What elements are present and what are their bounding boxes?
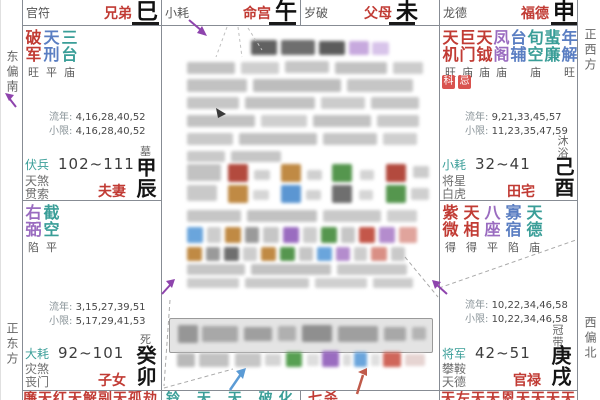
decade-range: 伏兵102~111 bbox=[25, 158, 135, 172]
palace-cell-bottom-2[interactable]: 铃 天 天 破化 bbox=[166, 391, 299, 400]
star-list: 右弼陷 截空平 bbox=[25, 204, 60, 254]
decade-range: 小耗32~41 bbox=[442, 158, 531, 172]
palace-cell-wu-header[interactable]: 小耗 命宫午 bbox=[161, 0, 300, 25]
year-deity-label: 龙德 bbox=[443, 4, 467, 21]
palace-cell-bottom-3[interactable]: 七杀 bbox=[308, 391, 438, 400]
star: 凤阁庙 bbox=[493, 29, 510, 79]
star: 破军旺 bbox=[25, 29, 42, 79]
star: 旬空庙 bbox=[527, 29, 544, 79]
brightness: 旺 bbox=[564, 67, 575, 79]
minor-star: 丧门 bbox=[25, 376, 49, 389]
star-list: 天机旺 巨门庙 天钺庙 凤阁庙 台辅 旬空庙 蜚廉 年解旺 bbox=[442, 29, 578, 79]
star: 蜚廉 bbox=[544, 29, 561, 79]
palace-cell-wei-header[interactable]: 岁破 父母未 bbox=[300, 0, 439, 25]
palace-name: 福德 bbox=[521, 3, 549, 23]
decade-range: 将军42~51 bbox=[442, 347, 531, 361]
palace-cell-xu[interactable]: 紫微得 天相得 八座平 寡宿陷 天德庙 流年: 10,22,34,46,58 小… bbox=[439, 200, 578, 390]
star: 巨门庙 bbox=[459, 29, 476, 79]
palace-cell-mao[interactable]: 右弼陷 截空平 流年: 3,15,27,39,51 小限: 5,17,29,41… bbox=[22, 200, 161, 390]
compass-east: 正东方 bbox=[5, 322, 18, 367]
palace-cell-si-header[interactable]: 官符 兄弟巳 bbox=[22, 0, 161, 25]
palace-name: 命宫 bbox=[243, 3, 271, 23]
branch-char: 巳 bbox=[136, 1, 158, 25]
yearly-ages: 流年: 9,21,33,45,57 小限: 11,23,35,47,59 bbox=[465, 111, 568, 139]
compass-east-south: 东偏南 bbox=[5, 50, 18, 95]
star: 三台庙 bbox=[61, 29, 78, 79]
star: 截空平 bbox=[43, 204, 60, 254]
brightness: 庙 bbox=[479, 67, 490, 79]
star: 紫微得 bbox=[442, 204, 459, 254]
brightness: 平 bbox=[487, 242, 498, 254]
branch-char: 未 bbox=[396, 1, 418, 25]
yearly-ages: 流年: 4,16,28,40,52 小限: 4,16,28,40,52 bbox=[49, 111, 146, 139]
star: 年解旺 bbox=[561, 29, 578, 79]
hua-ji-badge: 忌 bbox=[458, 75, 471, 89]
brightness: 得 bbox=[445, 242, 456, 254]
palace-name: 夫妻 bbox=[98, 181, 126, 201]
star: 八座平 bbox=[484, 204, 501, 254]
brightness: 庙 bbox=[530, 67, 541, 79]
brightness: 庙 bbox=[496, 67, 507, 79]
hua-ke-badge: 科 bbox=[442, 75, 455, 89]
star-list: 破军旺 天刑平 三台庙 bbox=[25, 29, 78, 79]
brightness: 庙 bbox=[529, 242, 540, 254]
branch-char: 午 bbox=[275, 1, 297, 25]
palace-name: 子女 bbox=[98, 370, 126, 390]
year-deity-label: 岁破 bbox=[304, 4, 328, 21]
decade-range: 大耗92~101 bbox=[25, 347, 124, 361]
star: 右弼陷 bbox=[25, 204, 42, 254]
yearly-ages: 流年: 3,15,27,39,51 小限: 5,17,29,41,53 bbox=[49, 301, 146, 329]
star: 寡宿陷 bbox=[505, 204, 522, 254]
grid-line bbox=[300, 390, 301, 400]
palace-cell-you[interactable]: 天机旺 巨门庙 天钺庙 凤阁庙 台辅 旬空庙 蜚廉 年解旺 科 忌 流年: 9,… bbox=[439, 25, 578, 200]
star: 天钺庙 bbox=[476, 29, 493, 79]
palace-name: 田宅 bbox=[507, 181, 535, 201]
purple-arrow-sidebar bbox=[5, 93, 16, 107]
compass-west-north: 西偏北 bbox=[583, 316, 596, 361]
brightness: 陷 bbox=[508, 242, 519, 254]
brightness: 平 bbox=[46, 242, 57, 254]
minor-star: 天德 bbox=[442, 376, 466, 389]
star: 天机旺 bbox=[442, 29, 459, 79]
branch-char: 申 bbox=[553, 1, 575, 25]
blurred-selected-row bbox=[169, 318, 433, 353]
brightness: 平 bbox=[46, 67, 57, 79]
palace-cell-bottom-4[interactable]: 天左天天恩天天天天 bbox=[441, 391, 577, 400]
palace-name: 官禄 bbox=[513, 370, 541, 390]
sihua-badges: 科 忌 bbox=[442, 75, 471, 89]
brightness: 陷 bbox=[28, 242, 39, 254]
branch-chars: 甲辰 bbox=[134, 157, 155, 199]
palace-cell-chen[interactable]: 破军旺 天刑平 三台庙 流年: 4,16,28,40,52 小限: 4,16,2… bbox=[22, 25, 161, 200]
palace-name: 父母 bbox=[364, 3, 392, 23]
year-deity-label: 官符 bbox=[26, 4, 50, 21]
brightness: 庙 bbox=[64, 67, 75, 79]
brightness: 得 bbox=[466, 242, 477, 254]
year-deity-label: 小耗 bbox=[165, 4, 189, 21]
palace-cell-bottom-1[interactable]: 廉天红天解副天孤劫 bbox=[23, 391, 160, 400]
compass-west: 正西方 bbox=[583, 28, 596, 73]
palace-cell-shen-header[interactable]: 龙德 福德申 bbox=[439, 0, 578, 25]
brightness: 旺 bbox=[28, 67, 39, 79]
star-list: 紫微得 天相得 八座平 寡宿陷 天德庙 bbox=[442, 204, 543, 254]
branch-chars: 己酉 bbox=[552, 156, 573, 198]
ziwei-chart: 东偏南 正东方 正西方 西偏北 官符 兄弟巳 小耗 命宫午 岁破 父母未 龙德 … bbox=[0, 0, 600, 400]
branch-chars: 庚戌 bbox=[549, 345, 570, 387]
star: 台辅 bbox=[510, 29, 527, 79]
star: 天德庙 bbox=[526, 204, 543, 254]
star: 天刑平 bbox=[43, 29, 60, 79]
yearly-ages: 流年: 10,22,34,46,58 小限: 10,22,34,46,58 bbox=[465, 299, 568, 327]
star: 天相得 bbox=[463, 204, 480, 254]
branch-chars: 癸卯 bbox=[134, 345, 155, 387]
palace-name: 兄弟 bbox=[104, 3, 132, 23]
